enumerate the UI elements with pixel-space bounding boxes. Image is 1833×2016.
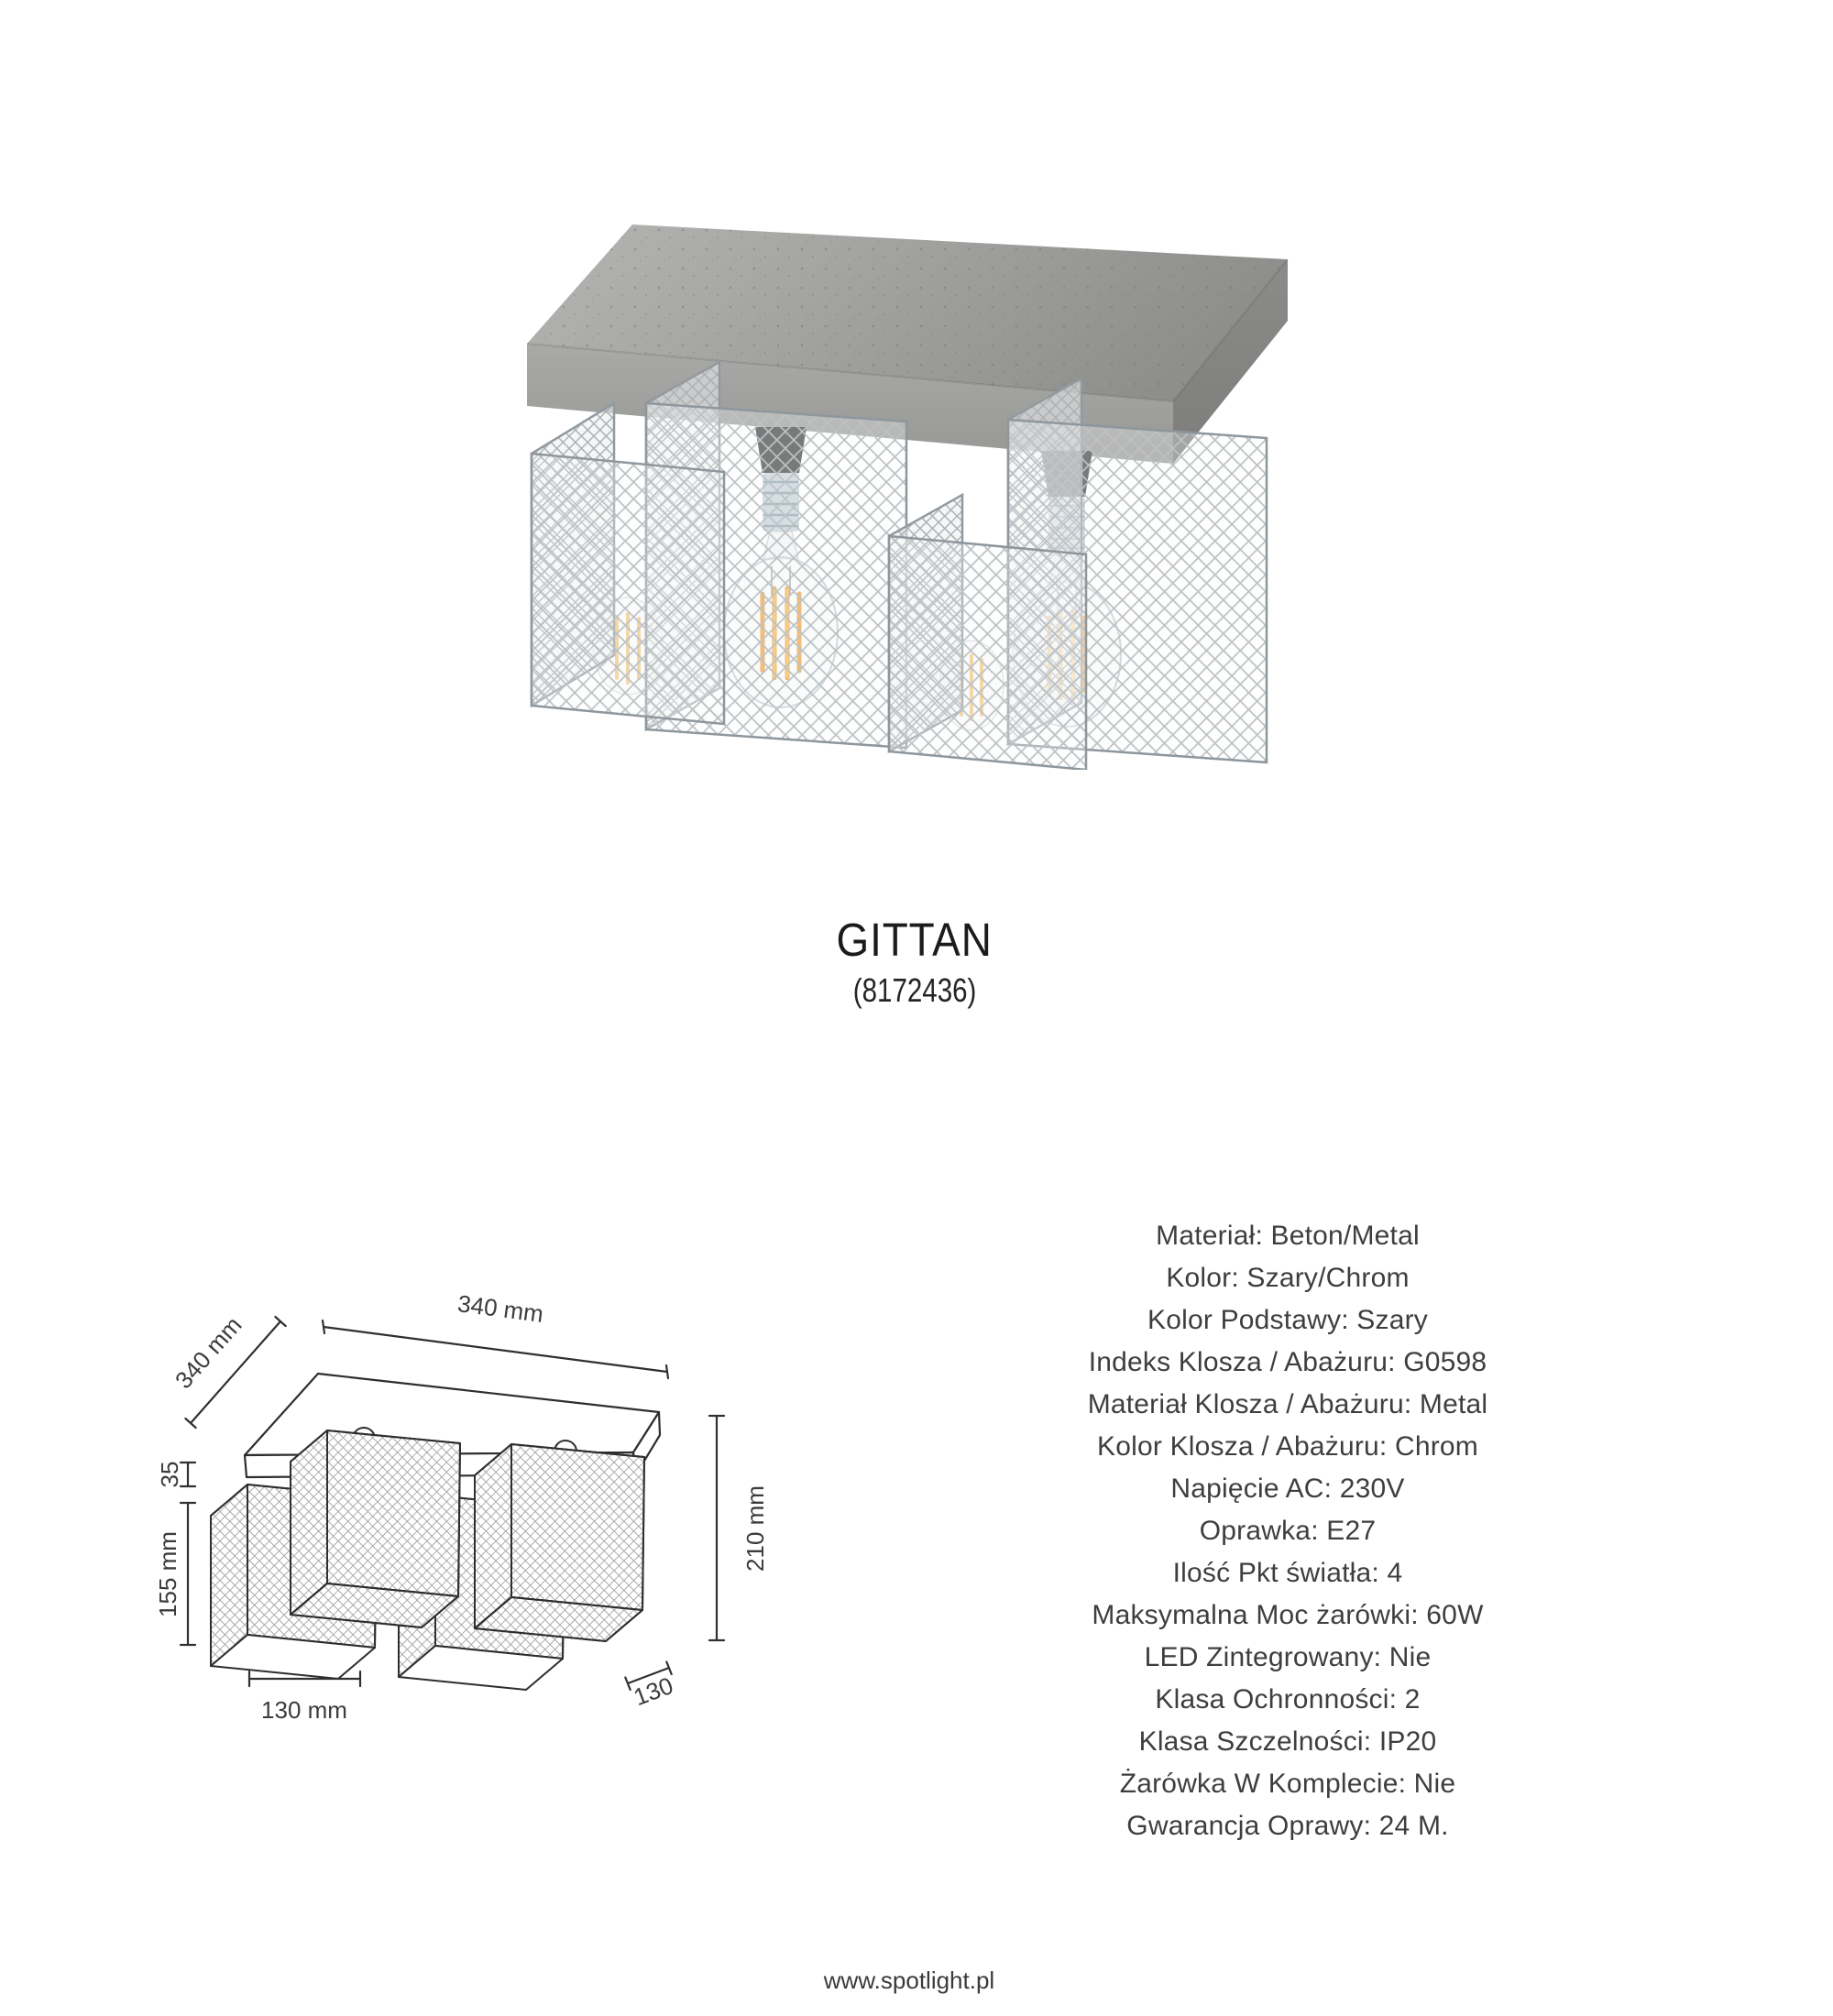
spec-line: LED Zintegrowany: Nie [921,1637,1654,1679]
dimension-label-total-height: 210 mm [741,1485,769,1572]
spec-line: Indeks Klosza / Abażuru: G0598 [921,1342,1654,1384]
specs-list: Materiał: Beton/Metal Kolor: Szary/Chrom… [921,1215,1654,1847]
dimension-label-shade-height: 155 mm [154,1531,181,1617]
spec-line: Kolor: Szary/Chrom [921,1257,1654,1299]
drawing-shade-back-left [291,1430,460,1627]
product-code: (8172436) [0,971,1829,1010]
spec-line: Oprawka: E27 [921,1510,1654,1552]
spec-line: Maksymalna Moc żarówki: 60W [921,1594,1654,1637]
spec-line: Materiał: Beton/Metal [921,1215,1654,1257]
spec-line: Kolor Podstawy: Szary [921,1299,1654,1342]
spec-line: Klasa Szczelności: IP20 [921,1721,1654,1763]
website-url: www.spotlight.pl [451,1967,1367,1995]
spec-line: Żarówka W Komplecie: Nie [921,1763,1654,1805]
page-root: GITTAN (8172436) [0,0,1833,2016]
dimension-label-shade-depth: 130 [630,1671,676,1711]
dimension-drawing: 340 mm 340 mm 35 155 mm 210 mm 130 mm 13… [87,1255,774,1824]
spec-line: Napięcie AC: 230V [921,1468,1654,1510]
spec-line: Kolor Klosza / Abażuru: Chrom [921,1426,1654,1468]
dimension-label-depth: 340 mm [170,1311,247,1394]
spec-line: Klasa Ochronności: 2 [921,1679,1654,1721]
product-name: GITTAN [0,915,1829,966]
spec-line: Gwarancja Oprawy: 24 M. [921,1805,1654,1847]
spec-line: Ilość Pkt światła: 4 [921,1552,1654,1594]
dimension-label-top-width: 340 mm [456,1289,545,1328]
drawing-shade-back-right [475,1444,644,1641]
dimension-label-shade-width: 130 mm [261,1696,347,1724]
product-photo [440,128,1393,770]
dimension-label-base-thickness: 35 [156,1462,183,1488]
spec-line: Materiał Klosza / Abażuru: Metal [921,1384,1654,1426]
